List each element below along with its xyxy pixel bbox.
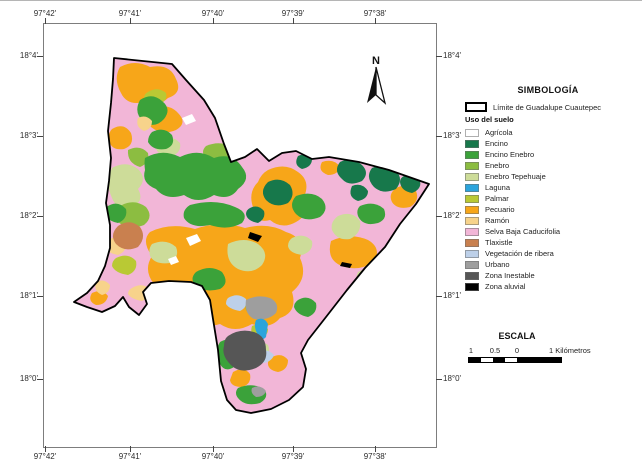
legend-label: Zona aluvial xyxy=(485,282,525,291)
scale-bar-segment xyxy=(517,358,561,362)
legend-item: Zona aluvial xyxy=(465,281,641,292)
limit-boundary-swatch xyxy=(465,102,487,112)
lat-label-right: 18°2' xyxy=(443,211,473,221)
lat-label-left: 18°3' xyxy=(12,131,38,141)
north-arrow: N xyxy=(355,51,395,111)
lat-label-left: 18°1' xyxy=(12,291,38,301)
legend-swatch xyxy=(465,195,479,203)
legend: SIMBOLOGÍA Límite de Guadalupe Cuautepec… xyxy=(455,85,641,292)
scale-bar-segment xyxy=(469,358,481,362)
legend-label: Encino xyxy=(485,139,508,148)
legend-item: Tlaxistle xyxy=(465,237,641,248)
lon-label-bottom: 97°42' xyxy=(28,452,62,462)
legend-label: Enebro Tepehuaje xyxy=(485,172,546,181)
landuse-patch-encino_enebro xyxy=(148,130,173,150)
legend-swatch xyxy=(465,162,479,170)
lat-tick-left xyxy=(37,56,43,57)
legend-swatch xyxy=(465,151,479,159)
north-arrow-right-half xyxy=(376,67,385,103)
legend-swatch xyxy=(465,184,479,192)
landuse-map-figure: N SIMBOLOGÍA Límite de Guadalupe Cuautep… xyxy=(0,0,642,470)
legend-label: Encino Enebro xyxy=(485,150,534,159)
legend-item: Agrícola xyxy=(465,127,641,138)
scale-tick-label: 1 xyxy=(464,346,478,355)
legend-item: Enebro Tepehuaje xyxy=(465,171,641,182)
lon-tick-bottom xyxy=(45,446,46,452)
lon-tick-bottom xyxy=(375,446,376,452)
legend-limit-row: Límite de Guadalupe Cuautepec xyxy=(465,102,641,112)
legend-label: Laguna xyxy=(485,183,510,192)
legend-label: Tlaxistle xyxy=(485,238,513,247)
scale-bar-segment xyxy=(505,358,517,362)
lat-tick-right xyxy=(436,216,442,217)
legend-label: Vegetación de ribera xyxy=(485,249,554,258)
scale-tick-label: 0.5 xyxy=(487,346,503,355)
lat-label-right: 18°3' xyxy=(443,131,473,141)
scale-tick-label: 0 xyxy=(510,346,524,355)
legend-title: SIMBOLOGÍA xyxy=(455,85,641,95)
legend-item: Vegetación de ribera xyxy=(465,248,641,259)
landuse-patch-enebro_tepehuaje xyxy=(109,164,144,208)
lat-label-left: 18°2' xyxy=(12,211,38,221)
lat-tick-left xyxy=(37,216,43,217)
scale-title: ESCALA xyxy=(470,331,564,341)
landuse-patch-encino_enebro xyxy=(193,268,226,290)
lat-tick-left xyxy=(37,379,43,380)
legend-item-list: AgrícolaEncinoEncino EnebroEnebroEnebro … xyxy=(455,127,641,292)
legend-label: Zona Inestable xyxy=(485,271,535,280)
landuse-patch-enebro_tepehuaje xyxy=(356,270,374,287)
lon-tick-top xyxy=(375,18,376,24)
legend-item: Urbano xyxy=(465,259,641,270)
north-label: N xyxy=(372,55,380,67)
legend-swatch xyxy=(465,272,479,280)
limit-boundary-label: Límite de Guadalupe Cuautepec xyxy=(493,103,601,112)
lat-tick-right xyxy=(436,56,442,57)
legend-label: Selva Baja Caducifolia xyxy=(485,227,560,236)
legend-item: Zona Inestable xyxy=(465,270,641,281)
lat-label-right: 18°4' xyxy=(443,51,473,61)
legend-item: Encino Enebro xyxy=(465,149,641,160)
lon-tick-top xyxy=(213,18,214,24)
lon-tick-top xyxy=(293,18,294,24)
legend-swatch xyxy=(465,228,479,236)
lat-tick-right xyxy=(436,136,442,137)
lon-tick-bottom xyxy=(130,446,131,452)
lon-tick-top xyxy=(130,18,131,24)
lon-tick-top xyxy=(45,18,46,24)
legend-label: Ramón xyxy=(485,216,509,225)
legend-item: Laguna xyxy=(465,182,641,193)
legend-item: Selva Baja Caducifolia xyxy=(465,226,641,237)
lat-tick-left xyxy=(37,136,43,137)
lat-tick-right xyxy=(436,296,442,297)
legend-swatch xyxy=(465,283,479,291)
legend-item: Palmar xyxy=(465,193,641,204)
legend-label: Palmar xyxy=(485,194,509,203)
lon-tick-bottom xyxy=(213,446,214,452)
legend-item: Enebro xyxy=(465,160,641,171)
legend-label: Pecuario xyxy=(485,205,515,214)
legend-label: Urbano xyxy=(485,260,510,269)
scale-bar-segment xyxy=(481,358,493,362)
legend-swatch xyxy=(465,239,479,247)
legend-item: Encino xyxy=(465,138,641,149)
lon-label-bottom: 97°41' xyxy=(113,452,147,462)
legend-label: Agrícola xyxy=(485,128,513,137)
lon-label-bottom: 97°40' xyxy=(196,452,230,462)
legend-label: Enebro xyxy=(485,161,509,170)
lon-label-bottom: 97°38' xyxy=(358,452,392,462)
legend-item: Ramón xyxy=(465,215,641,226)
legend-swatch xyxy=(465,250,479,258)
lat-label-right: 18°1' xyxy=(443,291,473,301)
north-arrow-left-half xyxy=(367,67,376,103)
lon-label-bottom: 97°39' xyxy=(276,452,310,462)
scale-bar-segment xyxy=(493,358,505,362)
scale-unit-label: 1 Kilómetros xyxy=(549,346,591,355)
legend-subtitle: Uso del suelo xyxy=(465,115,641,124)
scale-bar xyxy=(468,357,562,363)
legend-item: Pecuario xyxy=(465,204,641,215)
legend-swatch xyxy=(465,261,479,269)
lat-label-left: 18°0' xyxy=(12,374,38,384)
lat-tick-right xyxy=(436,379,442,380)
lat-label-right: 18°0' xyxy=(443,374,473,384)
lon-tick-bottom xyxy=(293,446,294,452)
lat-label-left: 18°4' xyxy=(12,51,38,61)
legend-swatch xyxy=(465,173,479,181)
lat-tick-left xyxy=(37,296,43,297)
